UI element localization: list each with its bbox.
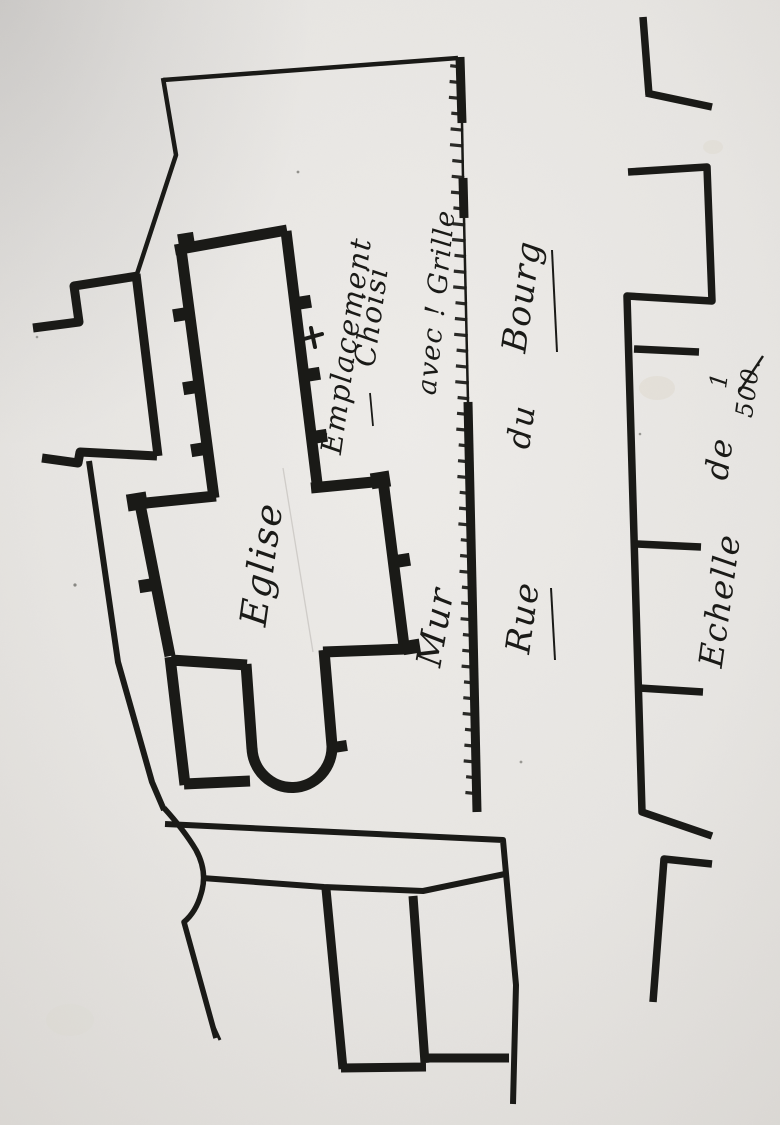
grille-tick <box>459 445 471 446</box>
grille-tick <box>464 682 476 683</box>
buttress <box>370 471 391 490</box>
grille-tick <box>464 761 478 762</box>
grille-tick <box>458 524 472 525</box>
ink-speck <box>639 433 642 436</box>
grille-tick <box>466 777 478 778</box>
buttress <box>190 442 208 457</box>
buttress <box>393 553 411 568</box>
grille-tick <box>453 287 467 288</box>
grille-tick <box>465 793 478 794</box>
buttress <box>182 380 200 395</box>
paper-stain <box>639 376 675 400</box>
grille-tick <box>460 556 473 557</box>
grille-tick <box>450 82 463 83</box>
ink-speck <box>297 171 300 174</box>
buttress <box>177 232 195 247</box>
ink-speck <box>36 336 39 339</box>
ink-speck <box>520 761 523 764</box>
grille-tick <box>465 729 477 730</box>
grille-tick <box>455 382 469 383</box>
grille-tick <box>457 477 471 478</box>
grille-tick <box>463 698 476 699</box>
grille-tick <box>461 619 475 620</box>
grille-tick <box>462 650 475 651</box>
buttress <box>303 367 321 382</box>
grille-tick <box>456 366 469 367</box>
label-du: du <box>499 402 543 451</box>
grille-tick <box>462 666 476 667</box>
wall-thick-segment <box>463 178 464 218</box>
scanned-plan-page: Emplacement Choisi Eglise Mur avec ! Gri… <box>0 0 780 1125</box>
grille-tick <box>454 334 468 335</box>
grille-tick <box>461 540 473 541</box>
grille-tick <box>463 635 475 636</box>
grille-tick <box>449 97 463 98</box>
grille-tick <box>450 66 462 67</box>
paper-stain <box>46 1004 94 1036</box>
grille-tick <box>452 176 465 177</box>
buttress <box>138 578 156 593</box>
grille-tick <box>452 161 464 162</box>
grille-tick <box>458 398 470 399</box>
buttress <box>126 492 148 512</box>
grille-tick <box>451 113 463 114</box>
grille-tick <box>457 413 470 414</box>
grille-tick <box>455 319 468 320</box>
grille-tick <box>454 271 467 272</box>
grille-tick <box>453 208 465 209</box>
grille-tick <box>463 714 477 715</box>
grille-tick <box>456 429 470 430</box>
label-de: de <box>697 435 741 482</box>
grille-tick <box>451 192 465 193</box>
grille-tick <box>460 571 474 572</box>
grille-tick <box>458 461 471 462</box>
grille-tick <box>461 603 474 604</box>
grille-tick <box>460 492 472 493</box>
buttress <box>332 740 348 753</box>
grille-tick <box>457 350 469 351</box>
buttress <box>172 307 190 322</box>
grille-tick <box>451 129 464 130</box>
paper-stain <box>703 140 723 154</box>
grille-tick <box>456 303 468 304</box>
grille-tick <box>464 745 477 746</box>
site-plan-drawing: Emplacement Choisi Eglise Mur avec ! Gri… <box>0 0 780 1125</box>
ink-speck <box>73 583 76 586</box>
grille-tick <box>459 508 472 509</box>
grille-tick <box>462 587 474 588</box>
buttress <box>294 295 312 310</box>
grille-tick <box>450 145 464 146</box>
